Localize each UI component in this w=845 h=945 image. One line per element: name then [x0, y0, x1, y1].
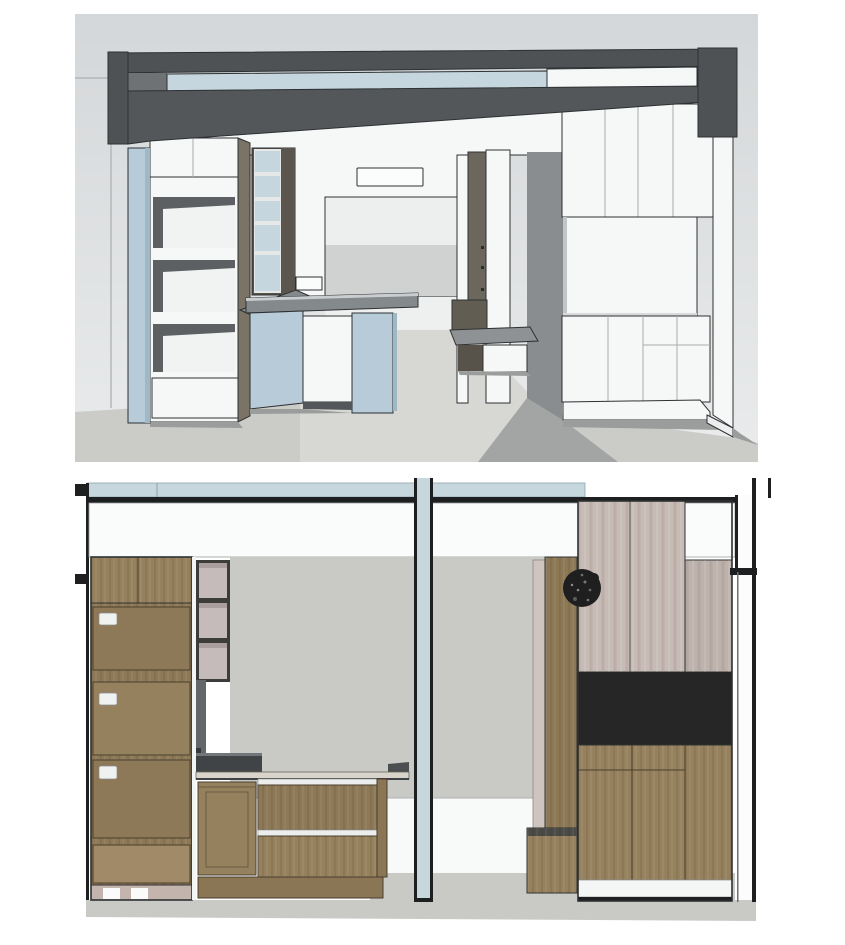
beam-right-cap — [698, 48, 737, 137]
sink — [296, 277, 322, 290]
structural-post — [414, 478, 433, 902]
cabinet-side-gap — [192, 557, 196, 900]
box-side-support — [196, 680, 206, 755]
design-rendering-page — [0, 0, 845, 945]
wardrobe-plinth — [563, 400, 722, 430]
open-shelf-tower — [150, 138, 250, 428]
tower-shelf-opening — [153, 260, 235, 312]
taupe-side-panel — [685, 560, 732, 672]
beam-left-cap — [108, 52, 128, 144]
drawer — [93, 845, 190, 883]
wardrobe-middle-panel — [563, 217, 697, 316]
wardrobe-lower-doors — [562, 316, 710, 402]
wardrobe-kick — [578, 880, 732, 897]
tall-wardrobe-elevation — [578, 501, 732, 901]
kitchen-island — [240, 277, 418, 414]
bench-cabinet — [527, 828, 577, 893]
tower-shelf-opening — [153, 324, 235, 372]
ceiling-light — [357, 168, 423, 186]
black-niche — [578, 672, 732, 745]
storage-bench — [450, 327, 538, 376]
base-cabinet — [578, 745, 732, 880]
island-front — [352, 313, 393, 413]
wreath — [563, 569, 601, 607]
counter-door — [198, 782, 256, 875]
tower-base-drawer — [152, 378, 238, 418]
island-kick — [303, 402, 352, 410]
drawer — [93, 760, 190, 838]
drawer-handle — [99, 766, 117, 779]
tower-shelf-opening — [153, 197, 235, 248]
narrow-light-panel — [533, 560, 545, 828]
counter-kick — [198, 877, 383, 898]
left-pillar — [128, 148, 150, 423]
tower-side-gable — [238, 138, 250, 422]
drawer-handle — [99, 613, 117, 625]
partition-base — [452, 300, 487, 332]
drawer — [93, 607, 190, 670]
drawer-handle — [99, 693, 117, 705]
window-panel — [325, 197, 457, 297]
island-door — [303, 316, 352, 402]
tower-top-doors — [150, 138, 238, 177]
counter-drawers — [258, 779, 377, 877]
glass-door-upper-cabinet — [252, 148, 295, 295]
tall-drawer-cabinet — [91, 557, 192, 900]
top-perspective-view — [75, 14, 758, 462]
bottom-elevation-view — [75, 478, 772, 925]
shelf-peg — [481, 266, 484, 269]
ceiling-band — [87, 483, 585, 497]
counter-side-panel — [377, 779, 387, 877]
shelf-peg — [481, 246, 484, 249]
drawer — [93, 682, 190, 755]
shelf-peg — [481, 288, 484, 291]
wardrobe-upper-doors — [562, 104, 713, 217]
cabinet-base-strip — [91, 885, 192, 900]
cabinet-top-doors — [91, 557, 192, 603]
island-side-gable — [250, 311, 303, 409]
